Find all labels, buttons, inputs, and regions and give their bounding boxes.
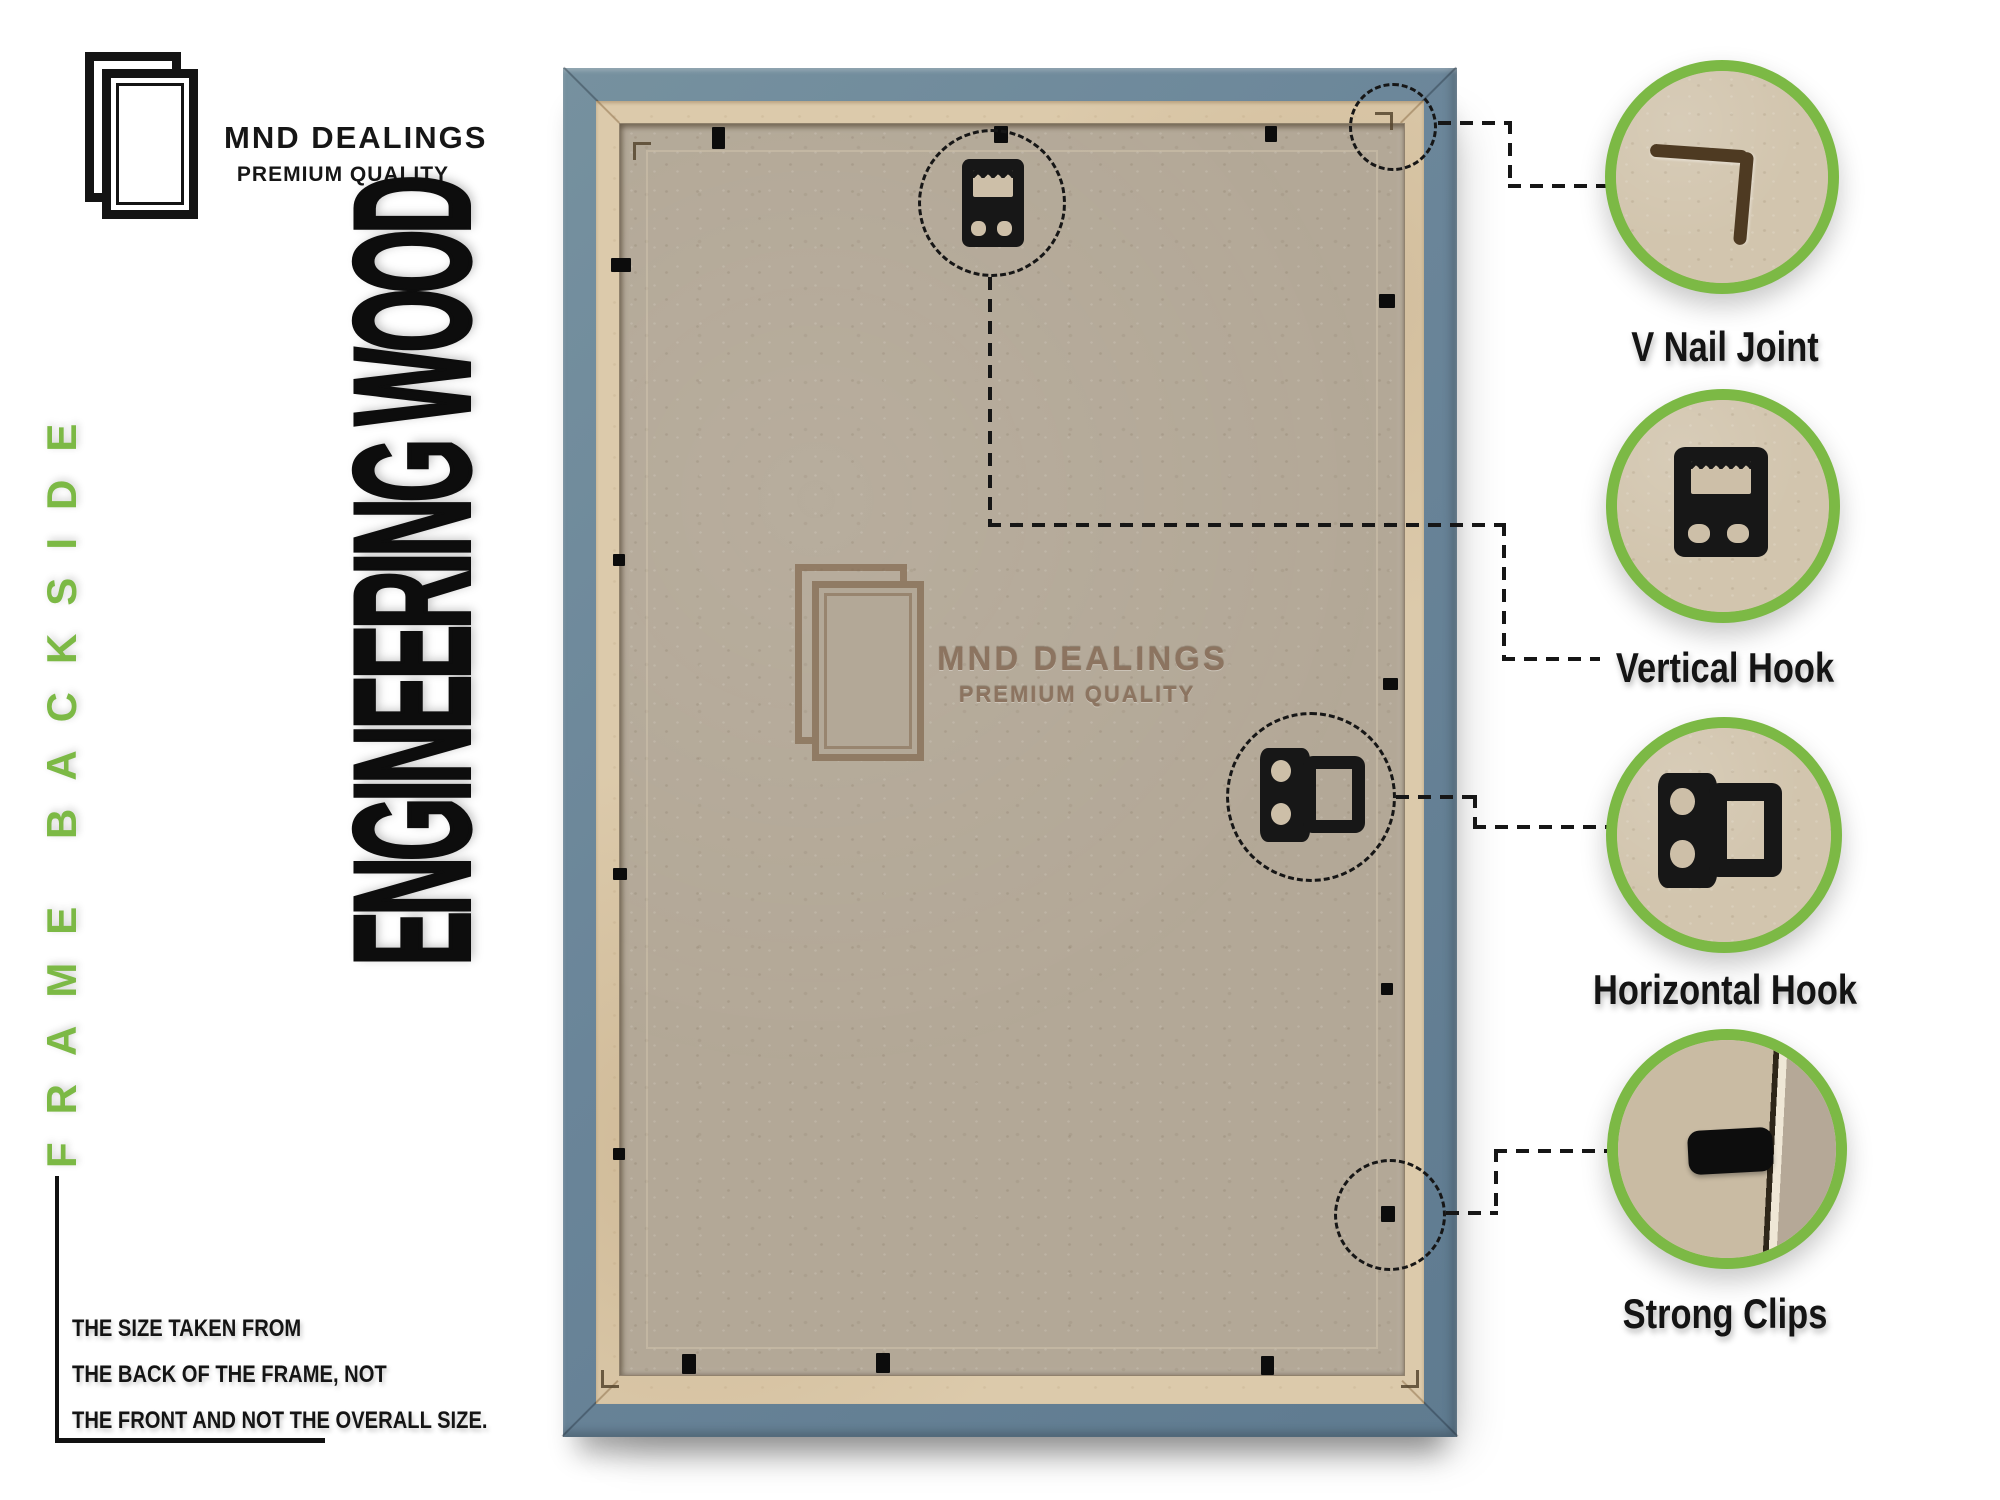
v-nail-groove	[1650, 144, 1748, 163]
size-note-line: THE BACK OF THE FRAME, NOT	[72, 1352, 488, 1398]
callout-label-horizontal-hook: Horizontal Hook	[1586, 966, 1865, 1014]
highlight-circle-strong-clip	[1334, 1159, 1446, 1271]
clip-icon	[1261, 1356, 1274, 1375]
frame-backside-label: FRAME BACKSIDE	[38, 396, 86, 1168]
watermark-tagline: PREMIUM QUALITY	[937, 682, 1217, 708]
horizontal-hook-photo	[1617, 728, 1831, 942]
connector-line	[1438, 121, 1510, 125]
v-nail-joint-photo	[1616, 71, 1828, 283]
connector-line	[1494, 1149, 1607, 1153]
strong-clip-photo	[1618, 1040, 1836, 1258]
brand-frame-icon	[102, 69, 198, 219]
callout-circle-v-nail-joint	[1605, 60, 1839, 294]
corner-bracket-icon	[633, 142, 653, 162]
size-note-line: THE SIZE TAKEN FROM	[72, 1306, 488, 1352]
callout-label-v-nail-joint: V Nail Joint	[1586, 323, 1865, 371]
miter-joint-line	[563, 67, 598, 102]
clip-icon	[1381, 983, 1393, 995]
vertical-hook-icon	[1674, 447, 1767, 557]
highlight-circle-horizontal-hook	[1226, 712, 1396, 882]
connector-line	[1446, 1211, 1498, 1215]
clip-icon	[611, 258, 631, 272]
corner-bracket-icon	[601, 1368, 621, 1388]
size-note: THE SIZE TAKEN FROM THE BACK OF THE FRAM…	[72, 1306, 567, 1444]
product-infographic: MND DEALINGS PREMIUM QUALITY FRAME BACKS…	[0, 0, 2000, 1500]
engineering-wood-label: ENGINEERING WOOD	[330, 180, 495, 966]
callout-label-strong-clips: Strong Clips	[1586, 1290, 1865, 1338]
callout-circle-strong-clips	[1607, 1029, 1847, 1269]
strong-clip-icon	[1687, 1127, 1774, 1175]
v-nail-groove	[1733, 151, 1754, 245]
clip-icon	[613, 554, 625, 566]
clip-icon	[613, 1148, 625, 1160]
v-nail-shadow	[1616, 228, 1671, 275]
clip-icon	[712, 127, 725, 149]
corner-bracket-icon	[1399, 1368, 1419, 1388]
brand-name: MND DEALINGS	[224, 120, 487, 156]
connector-line	[988, 523, 1506, 527]
connector-line	[1494, 1149, 1498, 1213]
connector-line	[1473, 825, 1608, 829]
note-rule-vertical	[55, 1176, 59, 1442]
connector-line	[1508, 121, 1512, 187]
vertical-hook-photo	[1617, 400, 1829, 612]
callout-label-vertical-hook: Vertical Hook	[1586, 644, 1865, 692]
connector-line	[1508, 184, 1608, 188]
clip-icon	[613, 868, 627, 880]
miter-joint-line	[596, 100, 620, 124]
connector-line	[1396, 795, 1477, 799]
callout-circle-vertical-hook	[1606, 389, 1840, 623]
clip-icon	[1265, 126, 1277, 142]
callout-circle-horizontal-hook	[1606, 717, 1842, 953]
clip-icon	[682, 1354, 696, 1374]
connector-line	[988, 277, 992, 527]
clip-icon	[876, 1353, 890, 1373]
clip-icon	[1379, 294, 1395, 308]
size-note-line: THE FRONT AND NOT THE OVERALL SIZE.	[72, 1398, 488, 1444]
miter-joint-line	[562, 1402, 597, 1437]
horizontal-hook-icon	[1658, 771, 1786, 891]
highlight-circle-vertical-hook	[918, 129, 1066, 277]
connector-line	[1502, 523, 1506, 661]
watermark-frame-icon	[812, 581, 924, 761]
clip-icon	[1383, 678, 1398, 690]
miter-joint-line	[1423, 1402, 1458, 1437]
miter-joint-line	[1422, 67, 1457, 102]
connector-line	[1473, 795, 1477, 829]
highlight-circle-v-nail	[1349, 83, 1437, 171]
watermark-name: MND DEALINGS	[937, 640, 1217, 678]
